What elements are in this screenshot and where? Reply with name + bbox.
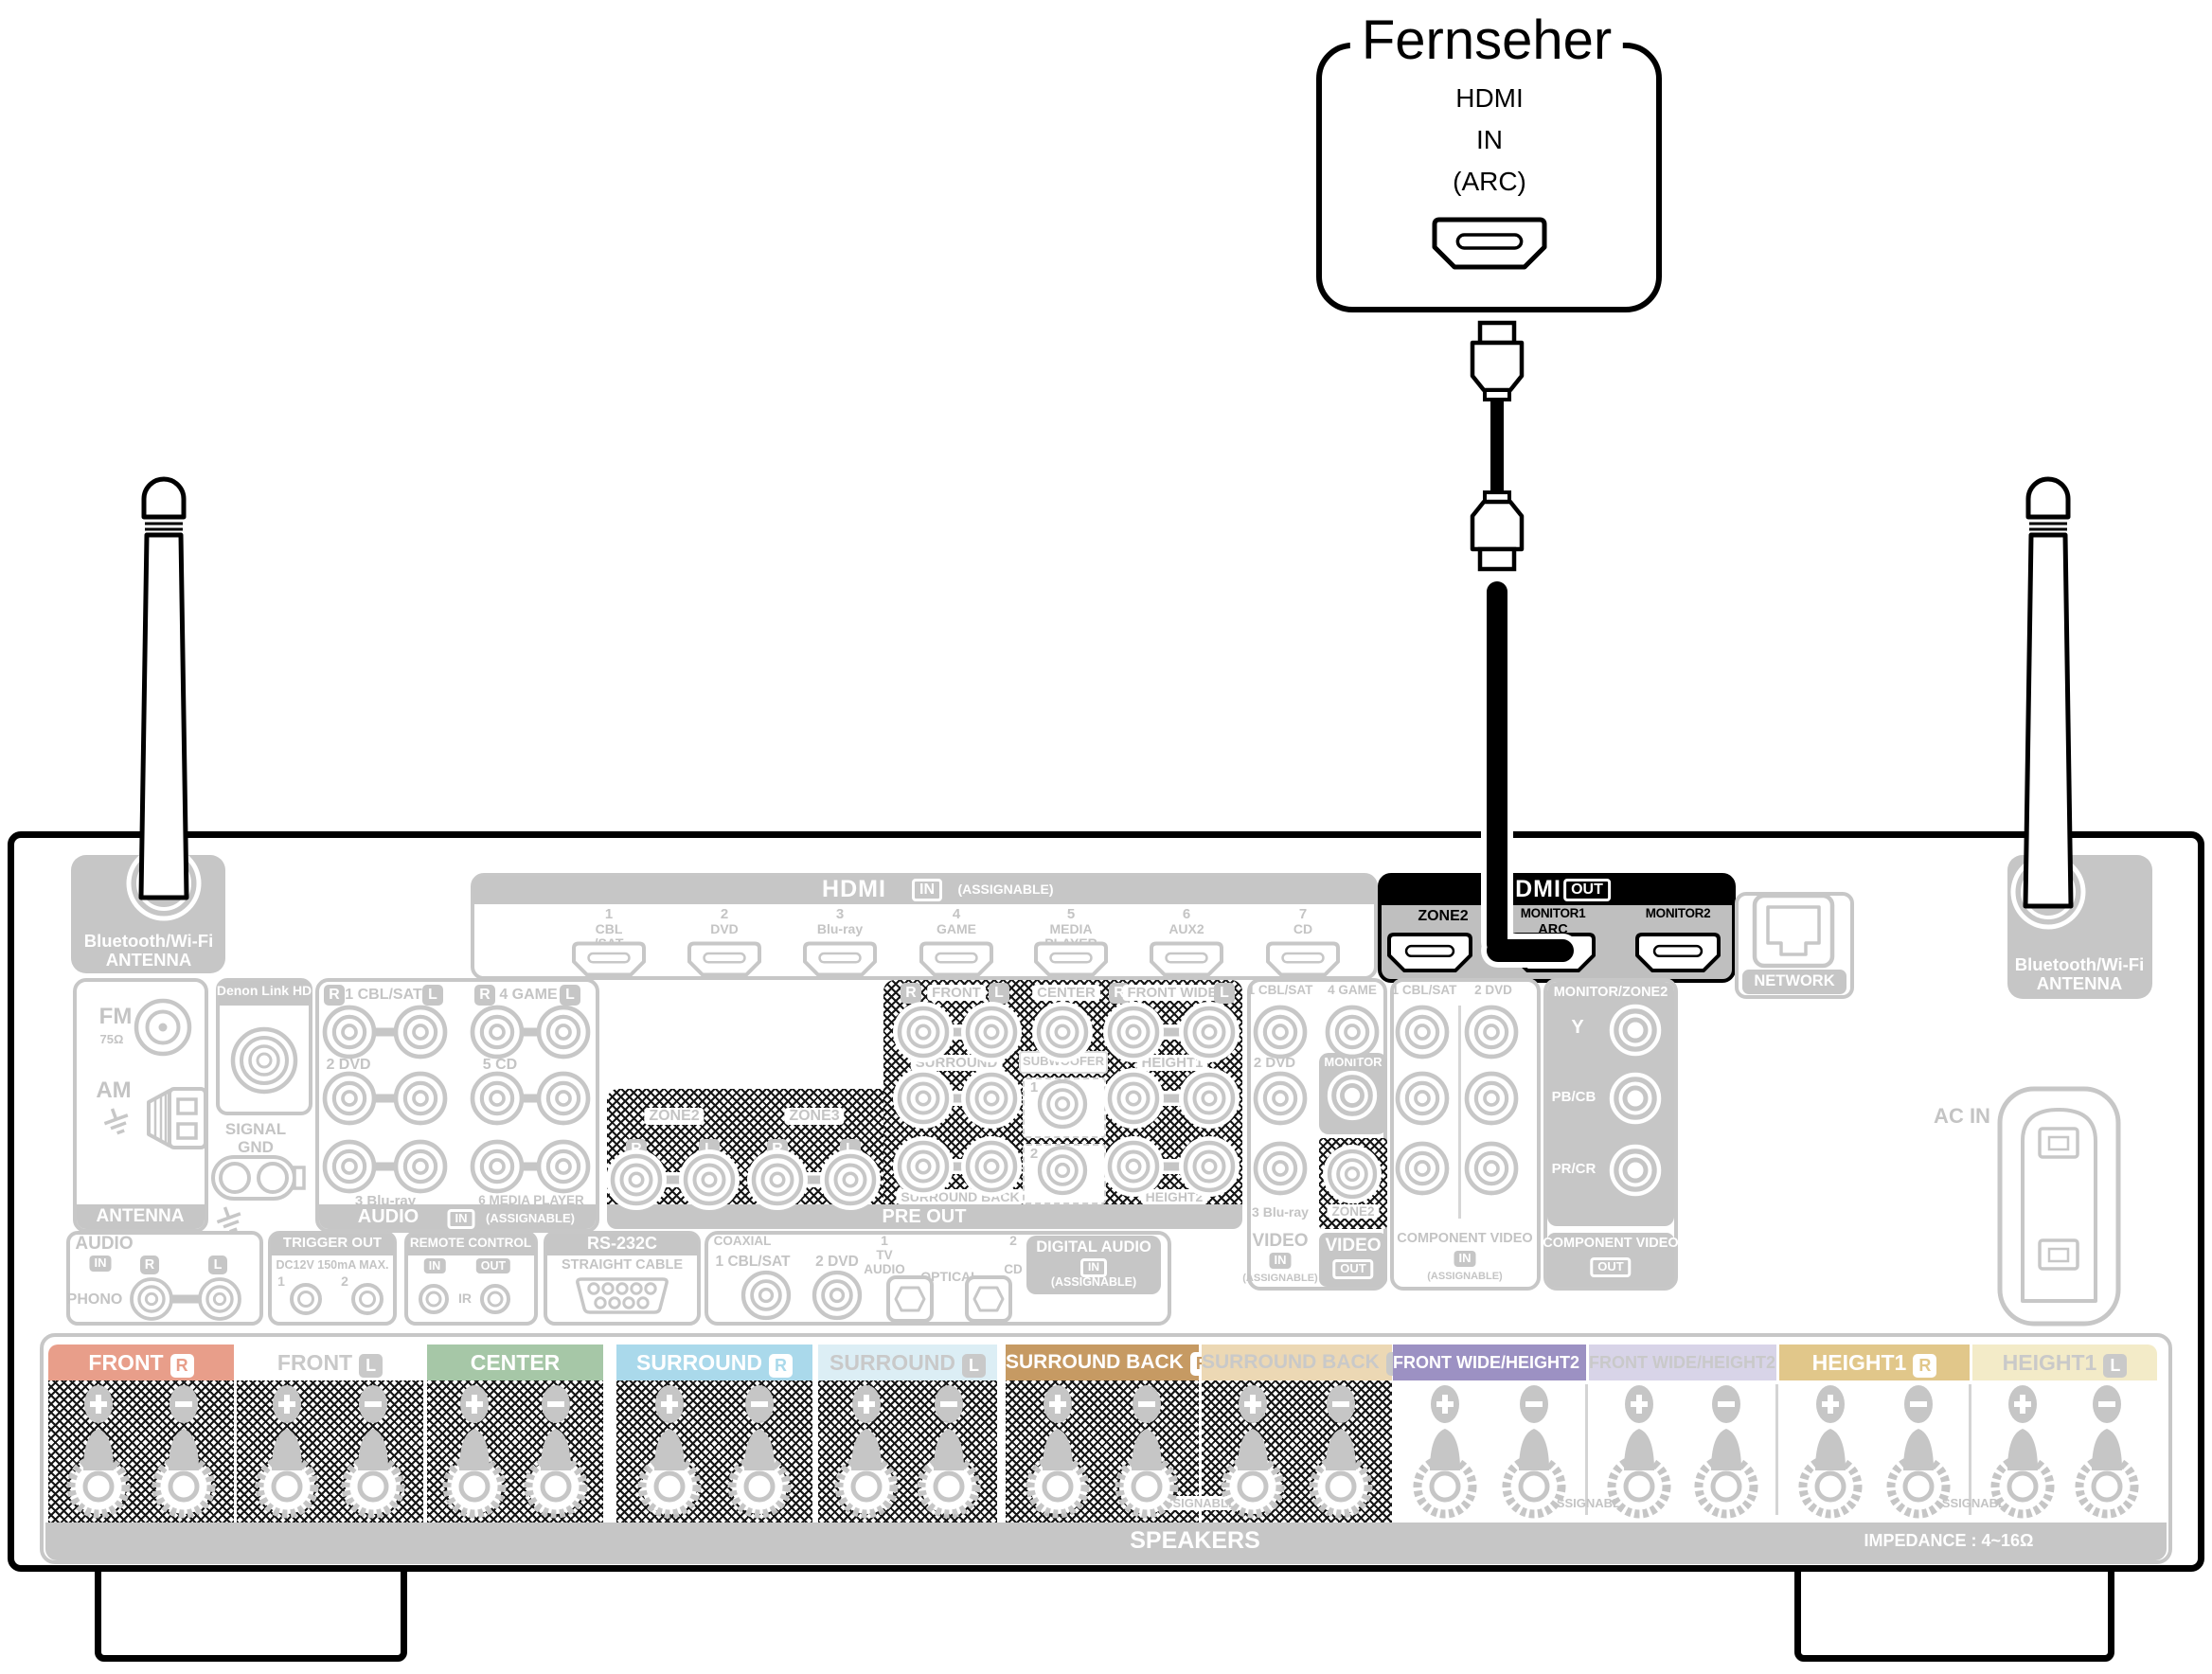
opt1-audio: AUDIO (864, 1262, 905, 1276)
antenna-section (73, 978, 208, 1233)
video-zone2-label: ZONE2 (1327, 1204, 1379, 1219)
audio-in-label: 1 CBL/SAT (345, 987, 421, 1004)
audio-in-label: 3 Blu-ray (355, 1193, 416, 1209)
audio-in-label: 2 DVD (326, 1057, 370, 1074)
hdmi-in-port-num: 4 (953, 906, 960, 922)
l-badge: L (1214, 983, 1235, 1004)
video-in-label: 1 CBL/SAT (1248, 983, 1313, 997)
fm-label: FM (99, 1004, 133, 1030)
assignable-label: ASSIGNABLE (1547, 1496, 1628, 1510)
hdmi-in-port-name: DVD (710, 921, 739, 936)
speaker-hatch (427, 1380, 603, 1523)
fm-ohm-label: 75Ω (100, 1032, 124, 1046)
hdmi-plug-connectors (1472, 323, 1522, 569)
speaker-label-text: FRONT WIDE/HEIGHT2 (1589, 1353, 1775, 1372)
r-badge: R (901, 983, 921, 1004)
zone-label: ZONE3 (784, 1108, 844, 1125)
signal-gnd-line1: SIGNAL (225, 1120, 286, 1139)
r-badge: R (626, 1139, 647, 1160)
remote-out-badge: OUT (476, 1258, 510, 1273)
video-in-footer-title: VIDEO (1252, 1231, 1308, 1252)
bluetooth-right-line2: ANTENNA (2037, 973, 2122, 994)
bluetooth-right-line1: Bluetooth/Wi-Fi (2015, 954, 2145, 975)
component-in-footer-note: (ASSIGNABLE) (1427, 1271, 1502, 1282)
speaker-label-text: SURROUND (829, 1350, 955, 1375)
component-out-row: Y (1571, 1017, 1583, 1039)
r-badge: R (474, 985, 495, 1006)
speaker-label-text: CENTER (471, 1350, 561, 1375)
digital-audio-note: (ASSIGNABLE) (1051, 1275, 1136, 1289)
speaker-label-text: SURROUND BACK (1202, 1351, 1380, 1373)
hdmi-in-port-num: 7 (1299, 906, 1307, 922)
hdmi-in-port-num: 6 (1183, 906, 1190, 922)
hdmi-in-port-num: 1 (605, 906, 613, 922)
bluetooth-left-line1: Bluetooth/Wi-Fi (84, 931, 214, 952)
hdmi-in-port-name: /SAT (595, 935, 624, 951)
r-badge: R (767, 1139, 788, 1160)
speaker-label-surround_back_l: SURROUND BACKL (1202, 1345, 1392, 1380)
hdmi-in-port-name: Blu-ray (817, 921, 863, 936)
speaker-label-surround_back_r: SURROUND BACKR (1006, 1345, 1199, 1380)
component-in-divider (1458, 1006, 1461, 1219)
phono-label: PHONO (67, 1291, 123, 1309)
l-badge: L (699, 1139, 720, 1160)
signal-gnd-line2: GND (238, 1138, 274, 1157)
phono-title: AUDIO (75, 1234, 133, 1255)
pre-out-label: FRONT WIDE (1123, 985, 1222, 1001)
hdmi-out-port-label: ZONE2 (1418, 908, 1468, 925)
speaker-label-text: HEIGHT1 (1812, 1350, 1907, 1375)
speaker-label-front_l: FRONTL (237, 1345, 423, 1380)
audio-in-label: 5 CD (483, 1057, 517, 1074)
l-badge: L (962, 1354, 986, 1378)
receiver-foot-left (95, 1560, 407, 1662)
pre-out-label: FRONT (927, 985, 986, 1001)
opt2-cd: CD (1004, 1262, 1023, 1276)
speaker-label-text: FRONT (88, 1350, 163, 1375)
l-badge: L (989, 983, 1009, 1004)
coax-jack-label: 1 CBL/SAT (716, 1254, 791, 1271)
l-badge: L (560, 985, 580, 1006)
pre-out-footer-label: PRE OUT (883, 1206, 967, 1228)
ac-in-label: AC IN (1934, 1104, 1990, 1129)
pre-out-label: SURROUND (911, 1055, 1003, 1071)
bluetooth-left-line2: ANTENNA (106, 950, 191, 971)
subwoofer-num: 1 (1030, 1079, 1038, 1095)
hdmi-in-port-num: 5 (1067, 906, 1075, 922)
speakers-footer-label: SPEAKERS (1130, 1527, 1260, 1555)
video-in-footer-note: (ASSIGNABLE) (1242, 1273, 1317, 1284)
coaxial-label: COAXIAL (714, 1234, 772, 1248)
trigger-jack-num: 1 (277, 1273, 285, 1289)
pre-out-label: CENTER (1032, 985, 1100, 1001)
assignable-label: ASSIGNABLE (1151, 1496, 1240, 1510)
opt1-tv: TV (876, 1248, 892, 1262)
optical-label: OPTICAL (920, 1269, 978, 1284)
r-badge: R (769, 1354, 793, 1378)
video-out-badge: OUT (1332, 1259, 1373, 1279)
speaker-label-front_wide_r: FRONT WIDE/HEIGHT2R (1393, 1345, 1586, 1380)
speaker-label-text: FRONT (277, 1350, 352, 1375)
hdmi-in-port-name: CD (1293, 921, 1312, 936)
network-label: NETWORK (1754, 972, 1834, 990)
trigger-jack-num: 2 (341, 1273, 348, 1289)
speakers-footer (45, 1523, 2167, 1560)
am-label: AM (96, 1077, 131, 1104)
video-in-label: 3 Blu-ray (1252, 1204, 1309, 1220)
opt1-num: 1 (881, 1233, 888, 1248)
pre-out-label: SUBWOOFER (1023, 1054, 1104, 1068)
hdmi-in-port-name: MEDIA (1049, 921, 1092, 936)
tv-port-line2: IN (1476, 125, 1503, 155)
video-in-label: 4 GAME (1328, 983, 1377, 997)
component-in-footer-badge: IN (1454, 1251, 1476, 1267)
hdmi-in-port-num: 2 (721, 906, 728, 922)
hdmi-out-port-label: MONITOR1 (1521, 906, 1586, 920)
audio-in-badge: IN (448, 1209, 475, 1229)
hdmi-in-badge: IN (912, 879, 942, 901)
component-in-label: 1 CBL/SAT (1392, 983, 1457, 997)
hdmi-out-port-sub: ARC (1538, 922, 1567, 937)
hdmi-in-port-num: 3 (836, 906, 844, 922)
hdmi-in-port-name: GAME (937, 921, 976, 936)
video-monitor-label: MONITOR (1324, 1055, 1382, 1069)
component-in-footer-title: COMPONENT VIDEO (1397, 1231, 1532, 1246)
speaker-label-text: FRONT WIDE/HEIGHT2 (1393, 1353, 1579, 1372)
component-out-footer-title: COMPONENT VIDEO (1543, 1236, 1678, 1251)
pre-out-label: HEIGHT2 (1141, 1189, 1208, 1204)
rs232c-sub: STRAIGHT CABLE (562, 1257, 683, 1273)
audio-in-label: 6 MEDIA PLAYER (478, 1193, 584, 1207)
antenna-footer-label: ANTENNA (97, 1206, 185, 1227)
hdmi-in-port-name: PLAYER (1044, 935, 1097, 951)
speaker-label-height1_l: HEIGHT1L (1972, 1345, 2157, 1380)
component-out-row: PB/CB (1552, 1089, 1597, 1105)
component-out-row: PR/CR (1552, 1161, 1597, 1177)
speaker-hatch (818, 1380, 997, 1523)
pre-out-label: SURROUND BACK (896, 1189, 1024, 1204)
hdmi-in-port-name: CBL (596, 921, 623, 936)
l-badge: L (2103, 1354, 2127, 1378)
rs232c-title: RS-232C (587, 1234, 657, 1254)
speaker-hatch (48, 1380, 234, 1523)
component-out-header: MONITOR/ZONE2 (1554, 985, 1668, 1000)
remote-in-badge: IN (424, 1258, 446, 1273)
tv-port-line3: (ARC) (1453, 167, 1526, 197)
l-badge: L (359, 1354, 383, 1378)
tv-port-line1: HDMI (1455, 83, 1524, 114)
trigger-out-title: TRIGGER OUT (283, 1235, 382, 1251)
audio-in-note: (ASSIGNABLE) (486, 1211, 575, 1225)
audio-in-label: 4 GAME (499, 987, 557, 1004)
tv-title: Fernseher (1350, 9, 1623, 72)
tv-hdmi-connection-diagram: Fernseher HDMIIN(ARC)HDMIIN(ASSIGNABLE)1… (0, 0, 2212, 1674)
zone-label: ZONE2 (644, 1108, 704, 1125)
speaker-label-text: HEIGHT1 (2003, 1350, 2097, 1375)
l-badge: L (208, 1255, 227, 1274)
speaker-label-center: CENTER (427, 1345, 603, 1380)
assignable-label: ASSIGNABLE (1933, 1496, 2013, 1510)
l-badge: L (422, 985, 443, 1006)
speaker-hatch (237, 1380, 423, 1523)
remote-control-title: REMOTE CONTROL (410, 1236, 531, 1250)
phono-badge: IN (90, 1255, 112, 1272)
speaker-label-height1_r: HEIGHT1R (1779, 1345, 1970, 1380)
hdmi-out-port-label: MONITOR2 (1646, 906, 1711, 920)
speaker-label-front_r: FRONTR (48, 1345, 234, 1380)
r-badge: R (324, 985, 345, 1006)
hdmi-in-title: HDMI (822, 876, 886, 903)
r-badge: R (1913, 1354, 1936, 1378)
hdmi-in-port-name: AUX2 (1168, 921, 1204, 936)
speaker-label-surround_r: SURROUNDR (616, 1345, 812, 1380)
receiver-foot-right (1794, 1560, 2114, 1662)
r-badge: R (140, 1255, 159, 1274)
component-in-label: 2 DVD (1474, 983, 1512, 997)
speaker-label-text: SURROUND (636, 1350, 762, 1375)
speaker-label-surround_l: SURROUNDL (818, 1345, 997, 1380)
coax-jack-label: 2 DVD (815, 1254, 859, 1271)
l-badge: L (840, 1139, 861, 1160)
hdmi-in-note: (ASSIGNABLE) (957, 882, 1053, 897)
digital-audio-badge: IN (1080, 1258, 1107, 1277)
r-badge: R (170, 1354, 194, 1378)
subwoofer-num: 2 (1030, 1146, 1038, 1162)
speakers-impedance-label: IMPEDANCE : 4~16Ω (1864, 1531, 2034, 1551)
opt2-num: 2 (1009, 1233, 1017, 1248)
speaker-hatch (616, 1380, 812, 1523)
digital-audio-title: DIGITAL AUDIO (1036, 1238, 1151, 1256)
speaker-label-front_wide_l: FRONT WIDE/HEIGHT2L (1589, 1345, 1776, 1380)
denon-link-title: Denon Link HD (217, 983, 312, 998)
pre-out-label: HEIGHT1 (1136, 1055, 1207, 1071)
video-in-label: 2 DVD (1254, 1055, 1295, 1071)
video-out-title: VIDEO (1325, 1236, 1381, 1256)
trigger-out-sub: DC12V 150mA MAX. (276, 1258, 388, 1272)
video-in-footer-badge: IN (1270, 1253, 1292, 1269)
remote-ir-label: IR (458, 1291, 472, 1306)
hdmi-out-title: HDMI (1497, 876, 1561, 903)
speaker-group-divider (1775, 1384, 1778, 1515)
hdmi-out-badge: OUT (1563, 879, 1611, 901)
speaker-label-text: SURROUND BACK (1006, 1351, 1184, 1373)
audio-in-title: AUDIO (358, 1206, 419, 1228)
component-out-footer-badge: OUT (1590, 1257, 1631, 1277)
